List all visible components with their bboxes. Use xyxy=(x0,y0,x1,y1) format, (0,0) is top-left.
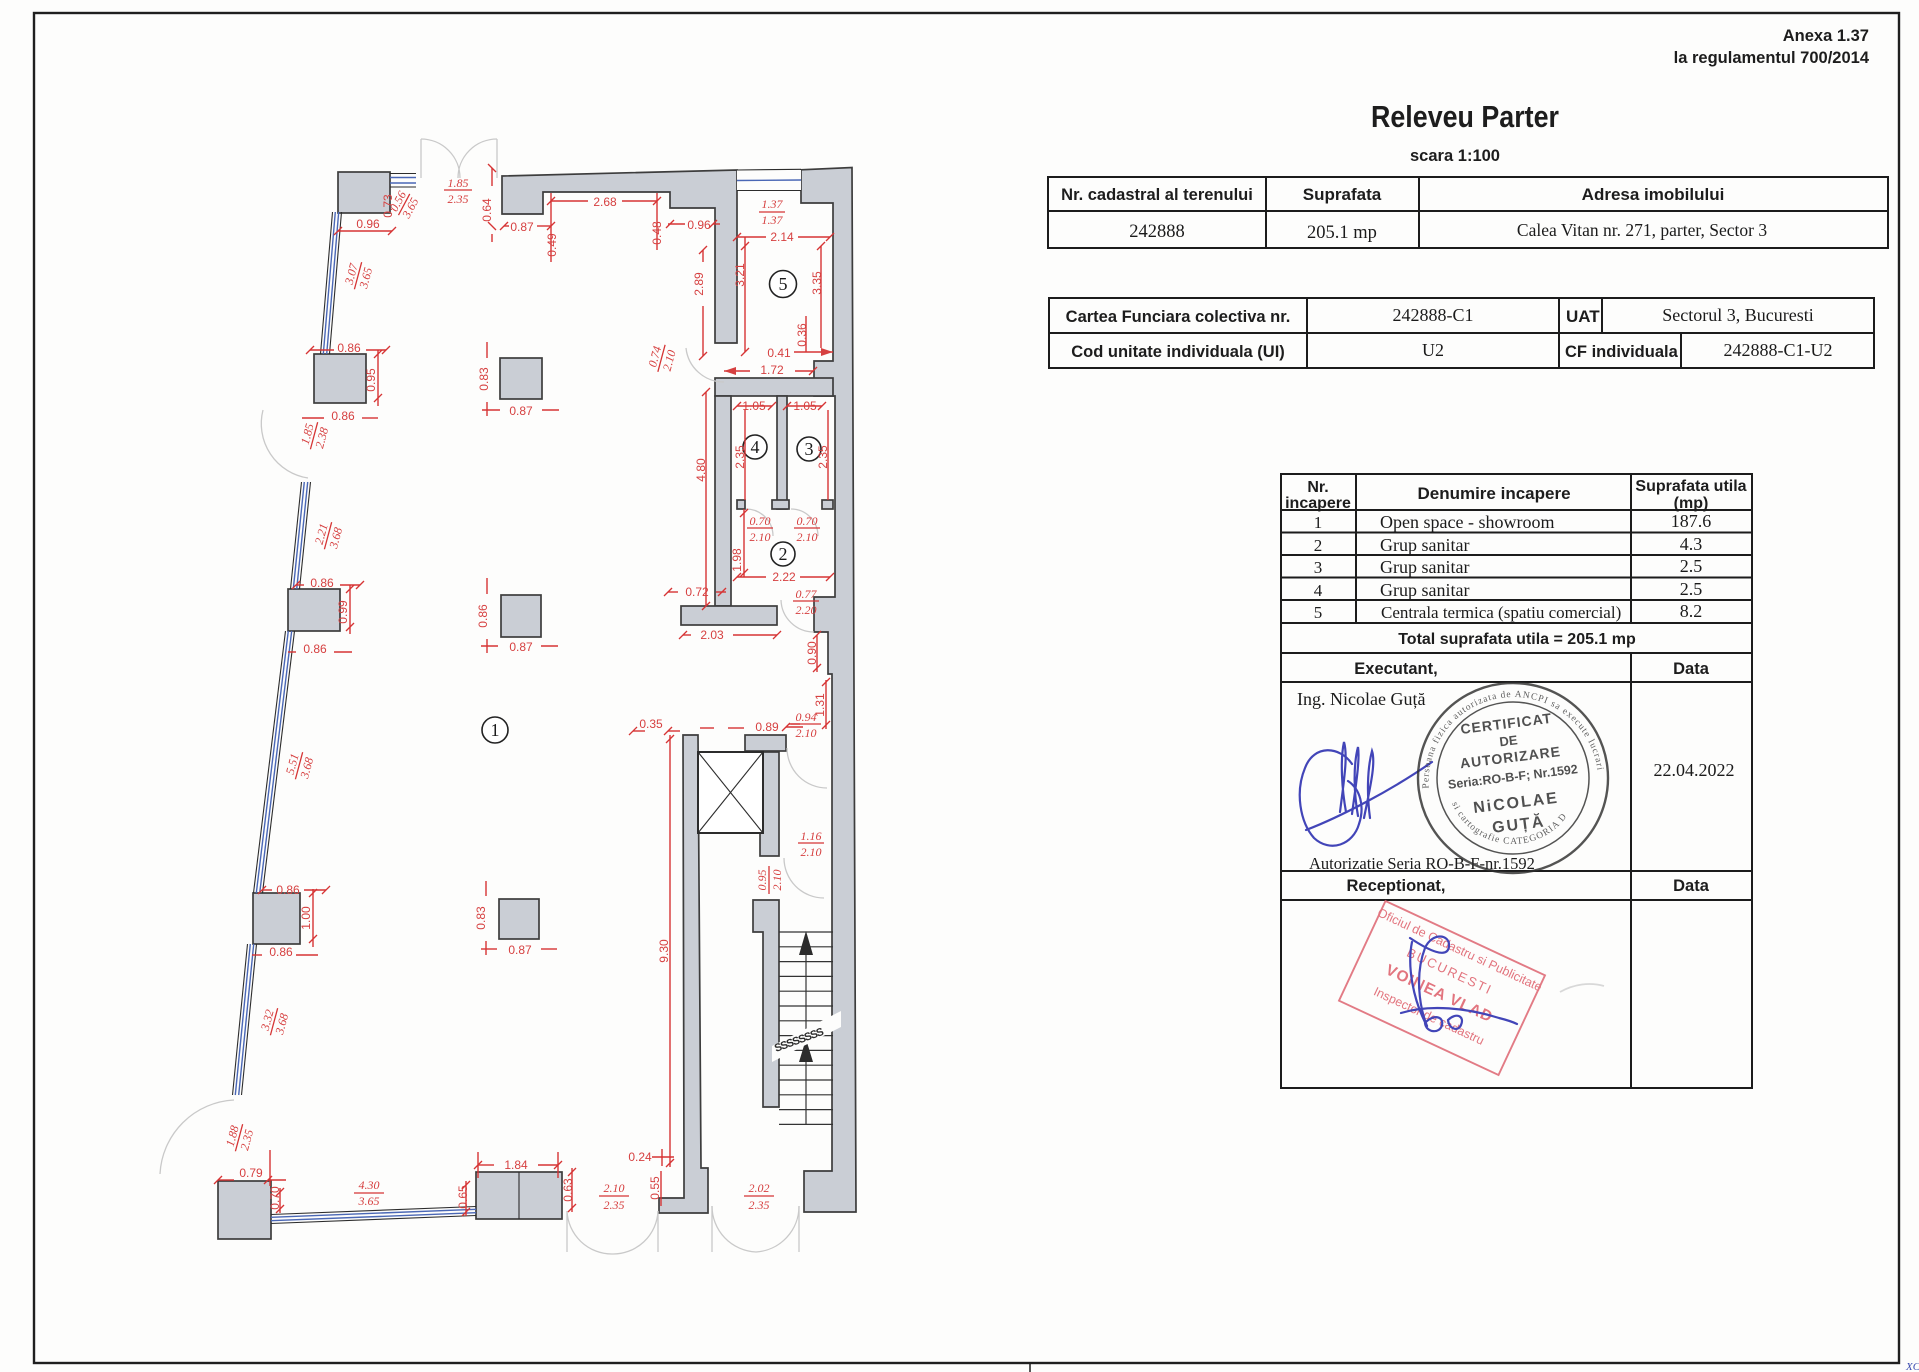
svg-text:0.41: 0.41 xyxy=(767,346,791,360)
svg-text:0.86: 0.86 xyxy=(476,604,490,628)
svg-text:0.96: 0.96 xyxy=(687,218,711,232)
svg-text:22.04.2022: 22.04.2022 xyxy=(1654,760,1735,780)
svg-text:Releveu Parter: Releveu Parter xyxy=(1371,99,1559,134)
svg-text:Suprafata: Suprafata xyxy=(1303,185,1382,204)
svg-text:3.35: 3.35 xyxy=(810,271,824,295)
svg-text:Adresa imobilului: Adresa imobilului xyxy=(1582,185,1725,204)
svg-text:Anexa 1.37: Anexa 1.37 xyxy=(1783,27,1869,45)
svg-text:0.86: 0.86 xyxy=(337,341,361,355)
svg-text:242888-C1: 242888-C1 xyxy=(1393,305,1474,325)
svg-text:0.87: 0.87 xyxy=(510,220,534,234)
svg-text:NiCOLAE: NiCOLAE xyxy=(1472,790,1559,817)
svg-text:Cartea Funciara colectiva nr.: Cartea Funciara colectiva nr. xyxy=(1066,308,1291,326)
svg-text:0.99: 0.99 xyxy=(336,600,350,624)
svg-text:Open space - showroom: Open space - showroom xyxy=(1380,512,1554,532)
svg-text:187.6: 187.6 xyxy=(1671,511,1712,531)
svg-text:0.70: 0.70 xyxy=(797,514,818,528)
svg-text:4.3: 4.3 xyxy=(1680,534,1703,554)
svg-text:1.37: 1.37 xyxy=(762,197,784,211)
svg-text:2.10: 2.10 xyxy=(770,870,784,891)
svg-text:0.86: 0.86 xyxy=(276,883,300,897)
svg-text:0.77: 0.77 xyxy=(796,587,818,601)
svg-text:CF individuala: CF individuala xyxy=(1565,343,1679,361)
svg-text:Data: Data xyxy=(1673,877,1710,895)
svg-text:2.02: 2.02 xyxy=(749,1181,770,1195)
svg-text:0.70: 0.70 xyxy=(750,514,771,528)
svg-text:3: 3 xyxy=(805,439,814,459)
svg-text:0.95: 0.95 xyxy=(755,870,769,891)
svg-text:1.85: 1.85 xyxy=(448,176,469,190)
svg-text:242888-C1-U2: 242888-C1-U2 xyxy=(1724,340,1833,360)
svg-text:1: 1 xyxy=(1314,513,1323,532)
svg-text:Calea Vitan nr. 271, parter, S: Calea Vitan nr. 271, parter, Sector 3 xyxy=(1517,220,1767,240)
svg-text:2.10: 2.10 xyxy=(750,530,771,544)
svg-text:incapere: incapere xyxy=(1285,495,1351,512)
svg-text:0.86: 0.86 xyxy=(310,576,334,590)
svg-text:Grup sanitar: Grup sanitar xyxy=(1380,535,1469,555)
svg-text:5: 5 xyxy=(779,274,788,294)
svg-text:UAT: UAT xyxy=(1566,307,1600,326)
svg-text:0.63: 0.63 xyxy=(561,1178,575,1202)
svg-text:0.86: 0.86 xyxy=(269,945,293,959)
svg-text:242888: 242888 xyxy=(1129,222,1185,242)
svg-text:0.96: 0.96 xyxy=(356,217,380,231)
svg-text:205.1 mp: 205.1 mp xyxy=(1307,223,1377,243)
svg-text:1.37: 1.37 xyxy=(762,213,784,227)
svg-text:2.35: 2.35 xyxy=(448,192,469,206)
svg-text:1.98: 1.98 xyxy=(730,548,744,572)
svg-text:2.10: 2.10 xyxy=(797,530,818,544)
svg-text:9.30: 9.30 xyxy=(657,939,671,963)
svg-text:4.30: 4.30 xyxy=(359,1178,380,1192)
svg-text:DE: DE xyxy=(1499,732,1519,749)
svg-text:0.35: 0.35 xyxy=(639,717,663,731)
svg-text:la regulamentul 700/2014: la regulamentul 700/2014 xyxy=(1674,49,1870,67)
svg-text:XC: XC xyxy=(1905,1361,1919,1372)
svg-text:Denumire incapere: Denumire incapere xyxy=(1417,484,1570,503)
svg-text:1.05: 1.05 xyxy=(793,399,817,413)
svg-text:1.00: 1.00 xyxy=(299,906,313,930)
svg-text:0.87: 0.87 xyxy=(508,943,532,957)
svg-text:0.87: 0.87 xyxy=(509,640,533,654)
svg-text:Total suprafata utila = 205.1: Total suprafata utila = 205.1 mp xyxy=(1398,631,1636,648)
svg-text:1.16: 1.16 xyxy=(801,829,822,843)
svg-text:Receptionat,: Receptionat, xyxy=(1346,877,1445,895)
svg-text:Ing. Nicolae Guță: Ing. Nicolae Guță xyxy=(1297,689,1425,709)
svg-text:0.24: 0.24 xyxy=(628,1150,652,1164)
svg-text:2.89: 2.89 xyxy=(692,272,706,296)
svg-text:scara 1:100: scara 1:100 xyxy=(1410,146,1500,165)
svg-text:0.55: 0.55 xyxy=(648,1176,662,1200)
svg-text:2.10: 2.10 xyxy=(604,1181,625,1195)
svg-text:0.89: 0.89 xyxy=(755,720,779,734)
svg-text:0.83: 0.83 xyxy=(477,367,491,391)
svg-text:2.35: 2.35 xyxy=(749,1198,770,1212)
svg-text:2.35: 2.35 xyxy=(816,445,830,469)
svg-text:2.68: 2.68 xyxy=(593,195,617,209)
svg-text:0.87: 0.87 xyxy=(509,404,533,418)
svg-text:Executant,: Executant, xyxy=(1354,660,1437,678)
svg-text:0.94: 0.94 xyxy=(796,710,817,724)
svg-text:Autorizatie Seria RO-B-F-nr.15: Autorizatie Seria RO-B-F-nr.1592 xyxy=(1309,854,1535,873)
svg-text:Suprafata utila: Suprafata utila xyxy=(1635,478,1746,495)
svg-text:2.20: 2.20 xyxy=(796,603,817,617)
svg-text:3: 3 xyxy=(1314,558,1323,577)
svg-text:3.65: 3.65 xyxy=(358,1194,380,1208)
svg-text:2.03: 2.03 xyxy=(700,628,724,642)
svg-text:0.86: 0.86 xyxy=(331,409,355,423)
svg-text:Sectorul 3, Bucuresti: Sectorul 3, Bucuresti xyxy=(1662,305,1813,325)
svg-text:2.10: 2.10 xyxy=(801,845,822,859)
svg-text:2.35: 2.35 xyxy=(604,1198,625,1212)
svg-text:4: 4 xyxy=(1314,581,1323,600)
svg-text:3.21: 3.21 xyxy=(733,263,747,287)
svg-text:8.2: 8.2 xyxy=(1680,601,1703,621)
svg-text:2: 2 xyxy=(1314,536,1323,555)
svg-text:2.10: 2.10 xyxy=(796,726,817,740)
svg-text:4.80: 4.80 xyxy=(694,458,708,482)
svg-text:2: 2 xyxy=(779,544,788,564)
svg-text:U2: U2 xyxy=(1422,340,1444,360)
svg-text:0.79: 0.79 xyxy=(239,1166,263,1180)
svg-text:4: 4 xyxy=(751,437,760,457)
svg-text:Data: Data xyxy=(1673,660,1710,678)
svg-text:(mp): (mp) xyxy=(1674,495,1709,512)
svg-text:Cod unitate individuala (UI): Cod unitate individuala (UI) xyxy=(1071,343,1285,361)
svg-text:0.65: 0.65 xyxy=(456,1185,470,1209)
svg-text:0.90: 0.90 xyxy=(805,641,819,665)
svg-text:2.35: 2.35 xyxy=(733,445,747,469)
svg-text:Centrala termica (spatiu comer: Centrala termica (spatiu comercial) xyxy=(1381,603,1621,622)
svg-text:1.05: 1.05 xyxy=(742,399,766,413)
svg-text:0.72: 0.72 xyxy=(685,585,709,599)
svg-text:0.48: 0.48 xyxy=(650,221,664,245)
svg-text:2.5: 2.5 xyxy=(1680,579,1703,599)
svg-text:2.5: 2.5 xyxy=(1680,556,1703,576)
svg-text:1.84: 1.84 xyxy=(504,1158,528,1172)
svg-text:0.70: 0.70 xyxy=(268,1186,282,1210)
svg-text:2.22: 2.22 xyxy=(772,570,796,584)
svg-text:1: 1 xyxy=(491,720,500,740)
svg-text:0.64: 0.64 xyxy=(480,198,494,222)
svg-text:Nr.: Nr. xyxy=(1307,479,1328,496)
svg-text:2.14: 2.14 xyxy=(770,230,794,244)
svg-text:5: 5 xyxy=(1314,603,1323,622)
svg-text:Nr. cadastral al terenului: Nr. cadastral al terenului xyxy=(1061,186,1253,204)
svg-text:0.36: 0.36 xyxy=(795,323,809,347)
svg-text:0.49: 0.49 xyxy=(545,233,559,257)
svg-text:Grup sanitar: Grup sanitar xyxy=(1380,557,1469,577)
svg-text:1.72: 1.72 xyxy=(760,363,784,377)
svg-text:0.83: 0.83 xyxy=(474,906,488,930)
svg-text:0.86: 0.86 xyxy=(303,642,327,656)
svg-text:0.95: 0.95 xyxy=(364,368,378,392)
svg-text:Grup sanitar: Grup sanitar xyxy=(1380,580,1469,600)
